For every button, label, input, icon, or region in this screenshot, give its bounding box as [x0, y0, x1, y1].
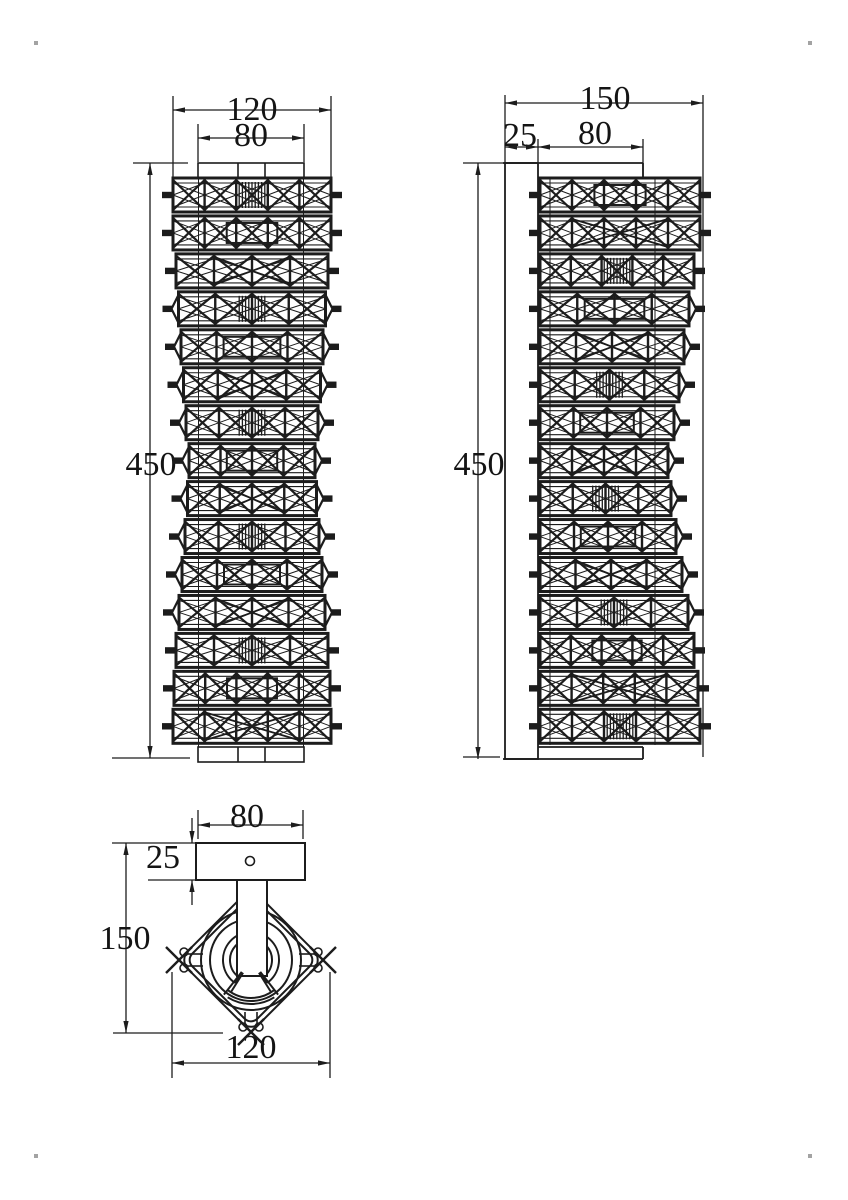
drawing-sheet: 120 80 450	[0, 0, 848, 1200]
side-dim-plate: 25	[503, 117, 538, 162]
top-mount-plate	[196, 843, 305, 880]
side-dim-height: 450	[454, 163, 509, 759]
side-plate-label: 25	[503, 117, 537, 154]
side-inner-label: 80	[578, 115, 612, 152]
top-dim-body-width: 120	[172, 972, 330, 1078]
top-body-depth-label: 150	[100, 920, 151, 957]
front-crystal-stack	[162, 178, 342, 743]
top-dim-plate-depth: 25	[112, 818, 196, 905]
stem	[237, 880, 267, 976]
top-body-width-label: 120	[226, 1029, 277, 1066]
front-canopy-top	[198, 163, 304, 178]
drawing-canvas: 120 80 450	[0, 0, 848, 1200]
side-depth-label: 150	[580, 80, 631, 117]
top-dim-plate-width: 80	[198, 798, 303, 839]
side-height-label: 450	[454, 446, 505, 483]
side-view: 150 25 80 450	[454, 80, 712, 759]
top-view: 80 25 150 120	[100, 798, 337, 1078]
front-dim-inner-width: 80	[198, 117, 304, 162]
screw-hole	[246, 857, 255, 866]
front-canopy-bottom	[198, 747, 304, 762]
front-inner-width-label: 80	[234, 117, 268, 154]
front-view: 120 80 450	[112, 91, 342, 762]
front-height-label: 450	[126, 446, 177, 483]
side-dim-inner: 80	[538, 115, 643, 177]
side-crystal-stack	[529, 178, 711, 743]
top-plate-depth-label: 25	[146, 839, 180, 876]
top-plate-width-label: 80	[230, 798, 264, 835]
